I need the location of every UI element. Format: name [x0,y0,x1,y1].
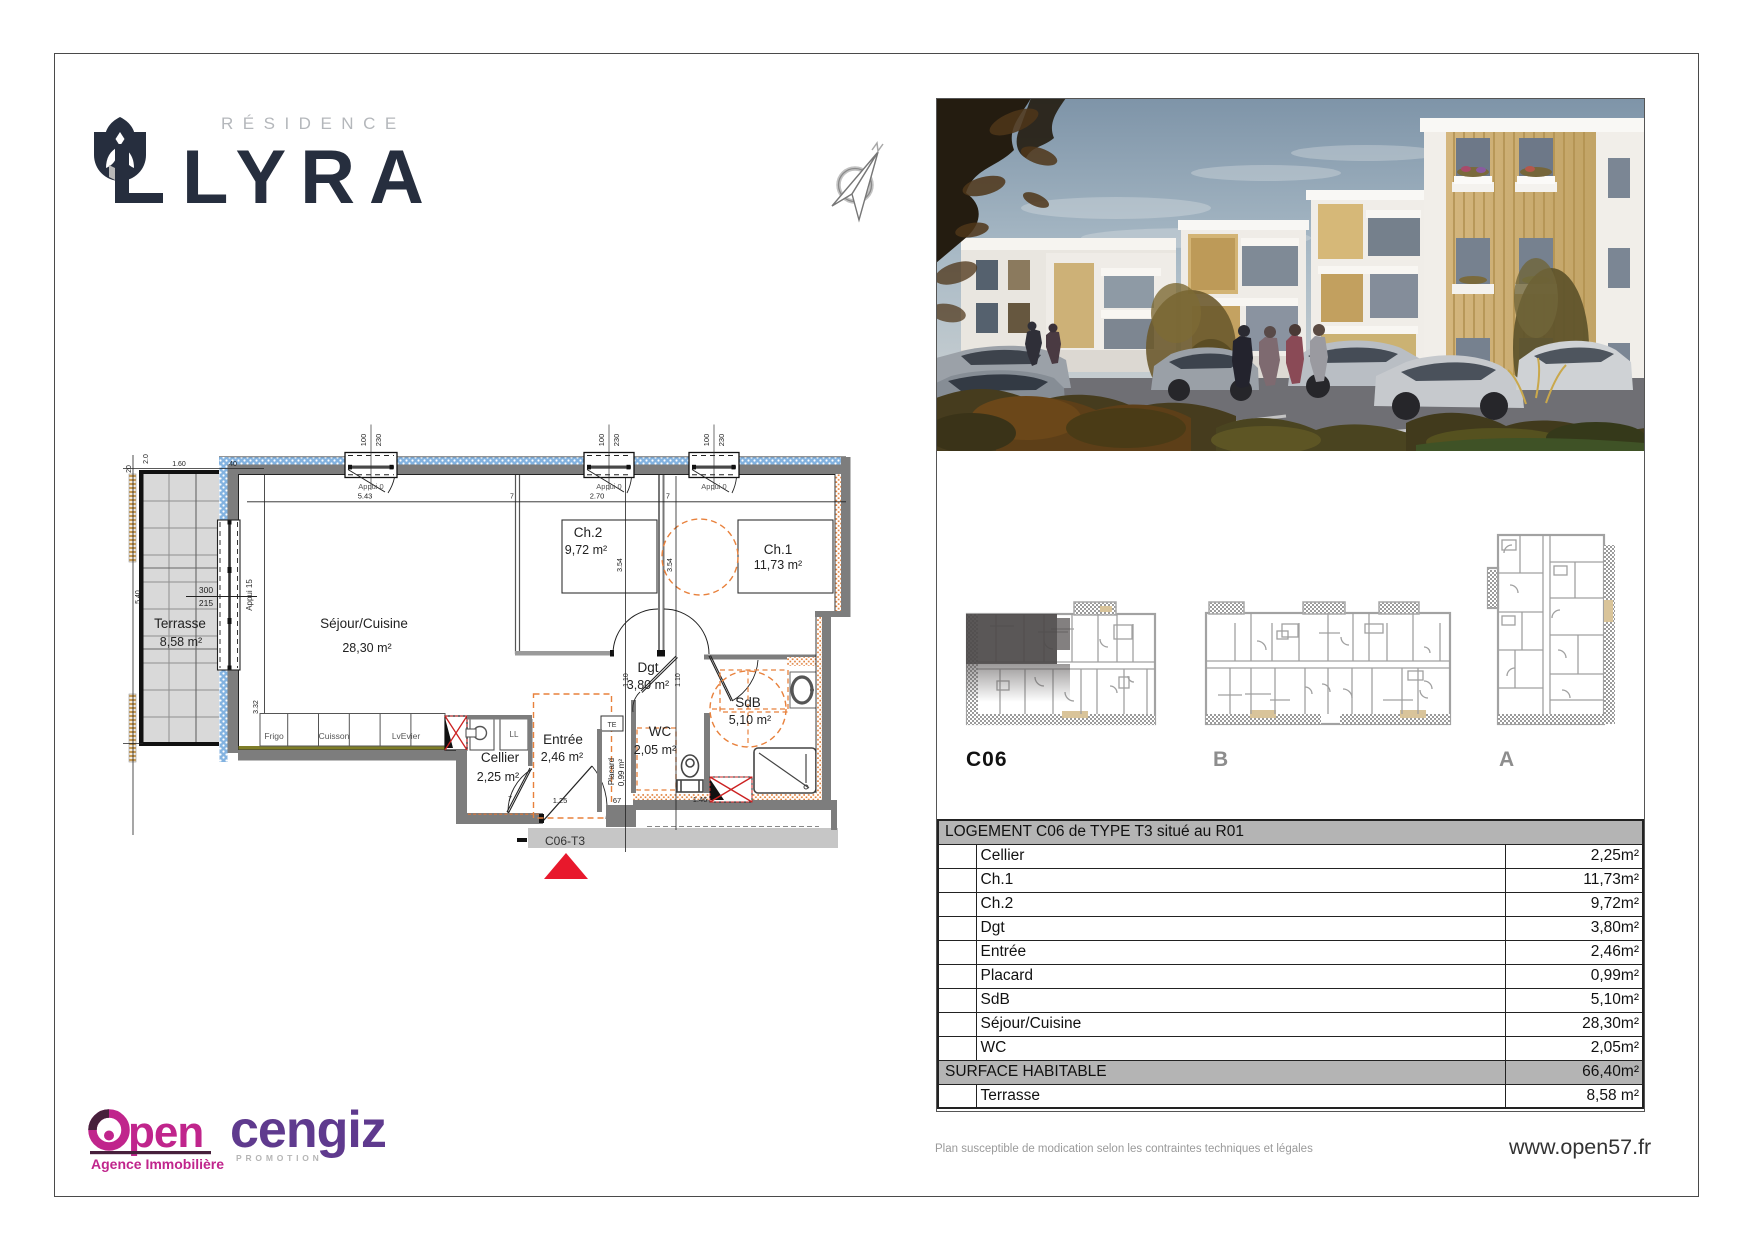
svg-text:WC: WC [649,724,672,739]
svg-text:28,30 m²: 28,30 m² [342,641,391,655]
svg-text:Entrée: Entrée [543,732,583,747]
svg-text:7: 7 [666,494,670,501]
svg-text:LYRA: LYRA [182,135,430,210]
svg-text:Appui 0: Appui 0 [596,482,621,491]
svg-text:230: 230 [717,434,726,447]
svg-text:Ch.1: Ch.1 [764,542,793,557]
svg-text:5,10 m²: 5,10 m² [729,713,771,727]
svg-text:Appui 15: Appui 15 [245,579,254,611]
svg-text:Appui 0: Appui 0 [358,482,383,491]
svg-text:9,72 m²: 9,72 m² [565,543,607,557]
svg-text:Frigo: Frigo [264,731,284,741]
svg-text:40: 40 [229,461,237,468]
svg-text:Placard: Placard [607,758,616,785]
svg-text:1.46: 1.46 [693,795,708,804]
svg-text:Terrasse: Terrasse [154,616,206,631]
svg-text:230: 230 [612,434,621,447]
svg-text:5.43: 5.43 [358,492,373,501]
svg-text:300: 300 [199,585,213,595]
svg-text:3.54: 3.54 [667,558,674,572]
svg-text:215: 215 [199,598,213,608]
svg-text:SdB: SdB [735,695,761,710]
svg-text:3.54: 3.54 [617,558,624,572]
svg-text:3,80 m²: 3,80 m² [627,678,669,692]
svg-text:2,05 m²: 2,05 m² [634,743,676,757]
svg-text:PROMOTION: PROMOTION [236,1153,323,1163]
svg-text:Séjour/Cuisine: Séjour/Cuisine [320,616,408,631]
svg-text:100: 100 [597,434,606,447]
svg-text:3.32: 3.32 [253,700,260,714]
svg-text:Appui 0: Appui 0 [701,482,726,491]
svg-text:7: 7 [508,796,512,803]
svg-text:5.40: 5.40 [135,590,142,604]
svg-text:1.25: 1.25 [553,796,568,805]
svg-text:LvEvier: LvEvier [392,731,421,741]
svg-text:Agence Immobilière: Agence Immobilière [91,1156,224,1172]
svg-text:100: 100 [702,434,711,447]
svg-text:2,46 m²: 2,46 m² [541,750,583,764]
svg-text:LL: LL [510,730,519,739]
svg-text:TE: TE [608,722,617,729]
svg-text:7: 7 [510,494,514,501]
svg-text:2,25 m²: 2,25 m² [477,770,519,784]
svg-text:0,99 m²: 0,99 m² [617,759,626,786]
svg-text:Cuisson: Cuisson [319,731,350,741]
svg-text:Cellier: Cellier [481,750,520,765]
svg-text:Dgt: Dgt [637,660,658,675]
svg-text:230: 230 [374,434,383,447]
svg-text:2.0: 2.0 [143,454,150,464]
svg-text:1.10: 1.10 [675,673,682,687]
svg-text:Ch.2: Ch.2 [574,525,603,540]
svg-text:pen: pen [128,1108,203,1157]
svg-text:cengiz: cengiz [230,1103,386,1159]
svg-text:11,73 m²: 11,73 m² [754,558,802,572]
svg-text:20: 20 [126,465,133,473]
svg-text:1.10: 1.10 [623,673,630,687]
svg-text:C06-T3: C06-T3 [545,834,585,848]
svg-text:8,58 m²: 8,58 m² [160,635,202,649]
svg-text:RÉSIDENCE: RÉSIDENCE [221,114,406,133]
svg-text:1.60: 1.60 [172,461,186,468]
svg-text:67: 67 [613,796,621,805]
svg-text:100: 100 [359,434,368,447]
svg-text:2.70: 2.70 [590,492,605,501]
